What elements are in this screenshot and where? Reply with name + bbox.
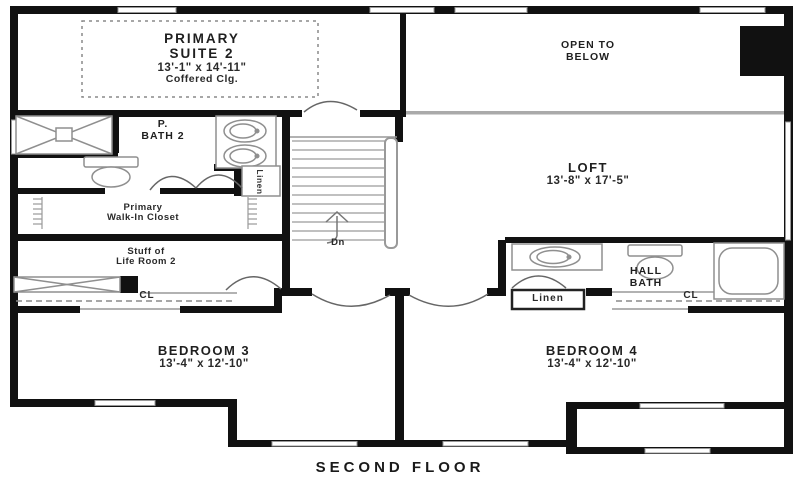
chimney-block: [740, 26, 784, 76]
window-loft-right: [786, 122, 791, 240]
room-label-primary-bath: P. BATH 2: [141, 119, 184, 142]
wall-hall-d: [586, 288, 612, 296]
bathtub: [714, 243, 784, 299]
thin-lines: [80, 111, 784, 309]
room-label-open-to-below: OPEN TO BELOW: [561, 40, 615, 63]
wall-b3closet-front-a: [10, 306, 80, 313]
bedroom-4-dims: 13'-4" x 12'-10": [546, 358, 638, 371]
window-bumpout-top: [640, 404, 724, 409]
wall-bumpout-left: [566, 402, 577, 454]
room-label-bedroom-3: BEDROOM 3 13'-4" x 12'-10": [158, 344, 250, 371]
closet-rod-right: [248, 197, 257, 229]
primary-bath-line-2: BATH 2: [141, 131, 184, 143]
window-bed4-south: [443, 442, 528, 447]
wall-bath-closet-a: [10, 188, 105, 194]
window-suite-top: [118, 8, 176, 13]
wall-bedroom-divider: [395, 288, 404, 447]
room-label-bedroom-4: BEDROOM 4 13'-4" x 12'-10": [546, 344, 638, 371]
loft-name: LOFT: [547, 161, 630, 175]
stair-railing: [385, 138, 397, 248]
room-label-hall-bath: HALL BATH: [630, 266, 662, 289]
closet-label-bedroom3: CL: [139, 290, 154, 301]
window-open-top-1: [455, 8, 527, 13]
loft-railing: [406, 111, 784, 115]
staircase: [292, 138, 397, 248]
window-open-top-2: [700, 8, 765, 13]
wall-b3-ne-stub: [274, 288, 282, 310]
wall-b4closet-front: [688, 306, 784, 313]
wall-step: [228, 399, 237, 447]
linen-primary-label: Linen: [255, 169, 265, 194]
wall-stair-west: [282, 110, 290, 296]
floor-plan: PRIMARY SUITE 2 13'-1" x 14'-11" Coffere…: [0, 0, 800, 500]
room-label-primary-suite: PRIMARY SUITE 2 13'-1" x 14'-11" Coffere…: [158, 32, 247, 86]
walk-in-line-2: Walk-In Closet: [107, 213, 179, 223]
door-bedroom-3: [312, 294, 390, 306]
door-primary-suite: [304, 101, 357, 112]
closet-x-door: [14, 277, 120, 292]
open-below-line-2: BELOW: [561, 52, 615, 64]
hall-bath-line-2: BATH: [630, 278, 662, 290]
wall-linen-west: [234, 164, 242, 196]
wall-hallbath-north: [505, 237, 792, 243]
door-bedroom-4: [409, 294, 488, 306]
window-bed3-south: [272, 442, 357, 447]
shower: [16, 116, 112, 154]
window-top-center: [370, 8, 434, 13]
wall-suite-east: [400, 13, 406, 110]
closet-rod-left: [33, 197, 42, 229]
primary-suite-note: Coffered Clg.: [158, 74, 247, 86]
bedroom-3-dims: 13'-4" x 12'-10": [158, 358, 250, 371]
wall-closet-stuff: [10, 234, 290, 241]
primary-suite-name-2: SUITE 2: [158, 47, 247, 62]
window-bed3-bottom: [95, 401, 155, 406]
bedroom-4-name: BEDROOM 4: [546, 344, 638, 358]
linen-hall-label: Linen: [532, 293, 564, 304]
wall-b3closet-front-b: [180, 306, 282, 313]
wall-left: [10, 6, 18, 407]
toilet-primary: [84, 157, 138, 187]
door-stuff-room: [226, 277, 281, 290]
primary-suite-name-1: PRIMARY: [158, 32, 247, 47]
wall-hallbath-west: [498, 240, 506, 296]
hall-bath-line-1: HALL: [630, 266, 662, 278]
vanity-primary: [216, 116, 276, 168]
wall-bath-closet-b: [160, 188, 240, 194]
primary-bath-line-1: P.: [141, 119, 184, 131]
wall-xdoor-stub: [120, 276, 138, 293]
bedroom-3-name: BEDROOM 3: [158, 344, 250, 358]
walls: [10, 6, 793, 454]
open-below-line-1: OPEN TO: [561, 40, 615, 52]
stair-treads: [292, 141, 385, 240]
closet-label-bedroom4: CL: [683, 290, 698, 301]
loft-dims: 13'-8" x 17'-5": [547, 175, 630, 188]
window-bumpout-bottom: [645, 449, 710, 454]
room-label-walk-in-closet: Primary Walk-In Closet: [107, 203, 179, 224]
stuff-line-2: Life Room 2: [116, 257, 176, 267]
stairs-down-label: Dn: [331, 238, 345, 248]
vanity-hall: [512, 244, 602, 270]
room-label-stuff-of-life: Stuff of Life Room 2: [116, 247, 176, 268]
door-hall-bath: [512, 276, 566, 288]
floor-plan-title: SECOND FLOOR: [316, 459, 485, 476]
door-bath-vestibule-1: [150, 176, 196, 190]
room-label-loft: LOFT 13'-8" x 17'-5": [547, 161, 630, 188]
